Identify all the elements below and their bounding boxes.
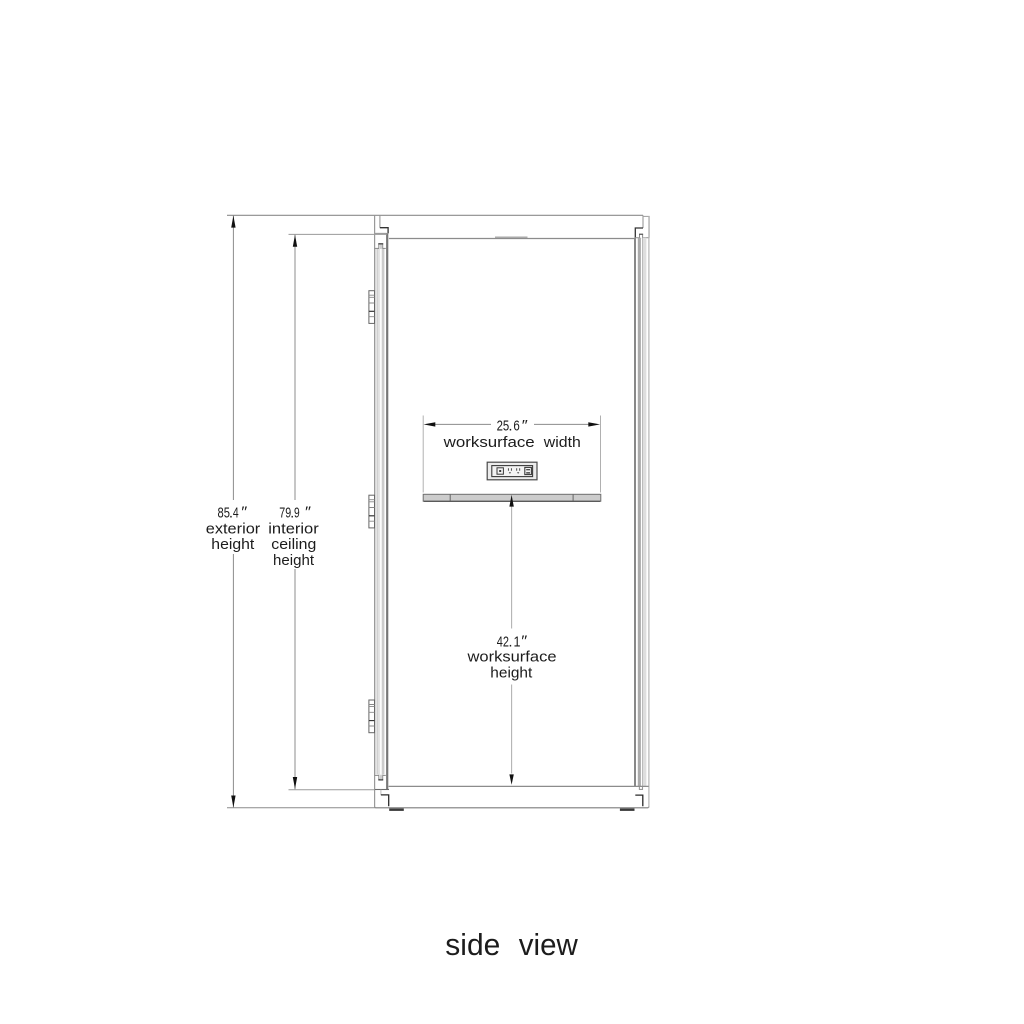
svg-text:worksurface: worksurface (443, 434, 535, 451)
svg-text:″: ″ (241, 504, 248, 521)
svg-text:″: ″ (522, 417, 529, 434)
svg-text:exterior: exterior (206, 520, 261, 537)
svg-text:worksurface: worksurface (466, 649, 556, 666)
svg-text:height: height (490, 665, 533, 682)
svg-text:height: height (273, 552, 315, 569)
svg-text:interior: interior (268, 520, 319, 537)
svg-text:height: height (211, 536, 255, 553)
svg-text:ceiling: ceiling (271, 536, 316, 553)
svg-text:9: 9 (294, 504, 300, 521)
svg-text:.: . (508, 418, 512, 435)
svg-text:4: 4 (233, 504, 239, 521)
svg-text:view: view (519, 928, 579, 962)
svg-text:″: ″ (521, 633, 528, 650)
svg-text:25: 25 (497, 418, 510, 435)
svg-text:width: width (543, 434, 581, 451)
svg-text:side: side (445, 928, 500, 962)
svg-text:″: ″ (305, 504, 312, 521)
svg-text:6: 6 (513, 418, 519, 435)
